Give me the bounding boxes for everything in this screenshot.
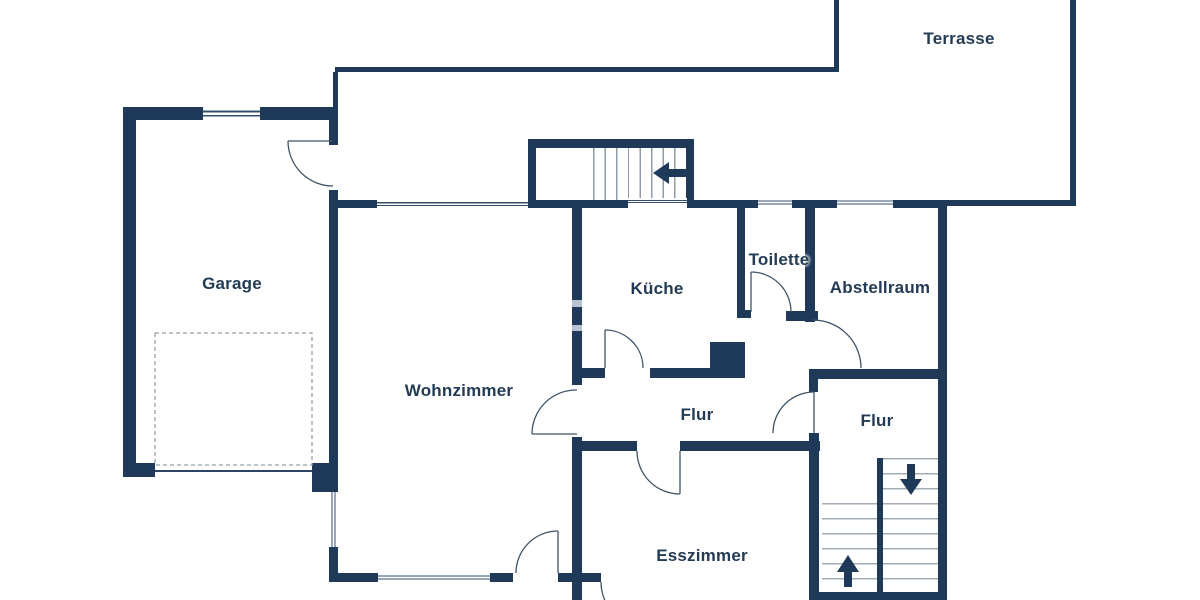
- room-label-esszimmer: Esszimmer: [656, 546, 748, 566]
- door-arc: [751, 272, 791, 312]
- window: [377, 200, 528, 208]
- wall-light-band: [572, 300, 582, 307]
- wall: [818, 369, 938, 379]
- window: [628, 198, 687, 205]
- wall: [737, 200, 745, 313]
- wall: [123, 107, 136, 477]
- wall: [490, 573, 513, 582]
- room-label-flur-mitte: Flur: [681, 405, 714, 425]
- room-label-garage: Garage: [202, 274, 262, 294]
- wall: [572, 437, 582, 600]
- wall: [572, 200, 582, 385]
- terrace-wall: [834, 0, 839, 70]
- room-label-terrasse: Terrasse: [923, 29, 994, 49]
- chimney-block: [710, 342, 745, 378]
- door-arc: [637, 451, 680, 494]
- door-arc: [605, 330, 643, 368]
- room-label-toilette: Toilette: [749, 250, 810, 270]
- window: [329, 492, 338, 547]
- terrace-wall: [1070, 0, 1076, 200]
- wall: [329, 118, 338, 145]
- stairwell-down-run: [883, 458, 938, 592]
- wall: [809, 433, 819, 600]
- wall-light-band: [572, 325, 582, 331]
- door-arc: [601, 582, 646, 600]
- door-arc: [288, 141, 333, 186]
- window: [203, 107, 260, 120]
- floor-plan: Terrasse Garage Wohnzimmer Küche Toilett…: [0, 0, 1200, 600]
- wall: [528, 139, 694, 148]
- room-label-wohnzimmer: Wohnzimmer: [405, 381, 513, 401]
- wall: [260, 107, 338, 120]
- door-arc: [773, 392, 814, 433]
- wall: [809, 369, 818, 392]
- wall: [329, 573, 378, 582]
- wall: [938, 200, 947, 600]
- terrace-wall: [335, 67, 839, 72]
- door-arc: [516, 531, 558, 573]
- wall: [329, 190, 338, 492]
- wall: [582, 368, 605, 378]
- window: [378, 573, 490, 582]
- door-arc: [813, 320, 861, 368]
- wall: [687, 200, 758, 208]
- wall: [582, 573, 601, 582]
- window: [837, 198, 893, 207]
- wall: [329, 200, 377, 208]
- wall: [686, 148, 694, 200]
- door-symbols-overlay: [0, 0, 1200, 600]
- room-label-kueche: Küche: [631, 279, 684, 299]
- door-arc: [532, 390, 577, 434]
- room-label-flur-rechts: Flur: [861, 411, 894, 431]
- wall: [650, 368, 710, 378]
- parking-space-outline: [155, 333, 312, 465]
- wall: [680, 441, 820, 451]
- terrace-wall: [333, 72, 338, 107]
- wall: [812, 592, 947, 600]
- wall: [737, 310, 751, 318]
- stair-stringer: [877, 458, 883, 592]
- wall: [572, 441, 637, 451]
- terrace-wall: [947, 200, 1076, 206]
- stairwell-up-run: [822, 503, 877, 592]
- wall: [123, 463, 155, 477]
- wall: [528, 139, 536, 200]
- window: [758, 198, 792, 207]
- room-label-abstellraum: Abstellraum: [830, 278, 930, 298]
- entrance-stairs: [593, 148, 686, 200]
